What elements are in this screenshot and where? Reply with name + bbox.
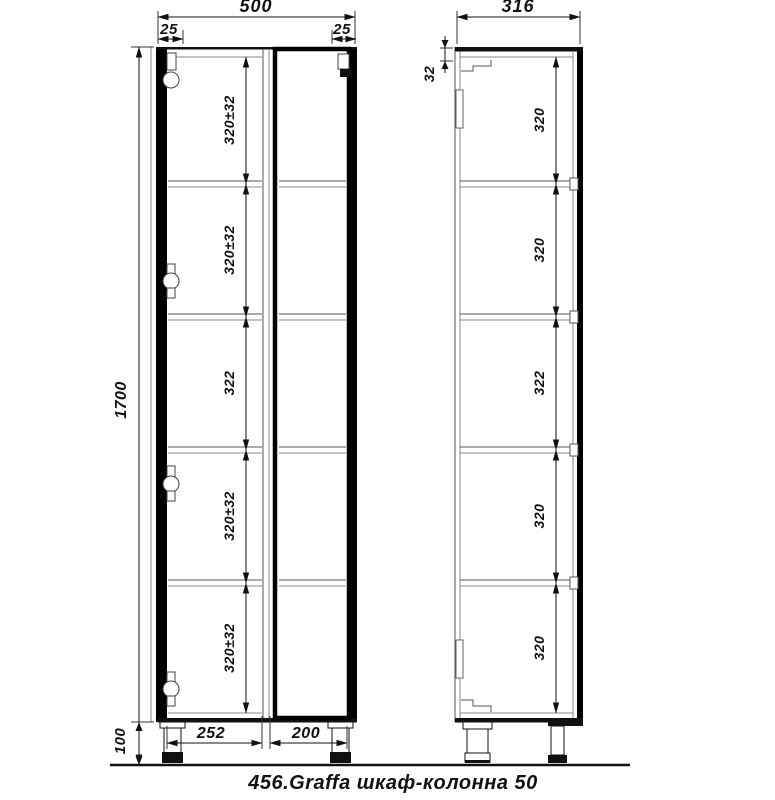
shelf-lines-side [460,178,578,589]
leg-foot [162,752,183,763]
top-panel-edge [455,47,583,52]
dim-label-shelf-4: 320±32 [221,491,237,541]
dim-label-25-right: 25 [332,21,351,38]
dim-label-shelf-1: 320±32 [221,95,237,145]
bottom-bracket-icon [461,700,491,712]
shelf-support-icon [570,178,578,190]
top-bracket-icon [461,60,491,71]
dim-side-shelf-chain: 320 320 322 320 320 [531,57,556,713]
back-panel [577,47,583,722]
leg-foot [548,755,567,763]
shelf-lines-left-section [168,181,262,586]
dim-label-32: 32 [421,66,437,83]
right-door-panel [275,49,349,718]
dim-total-depth: 316 [457,0,580,44]
hinge-plate-icon [456,90,463,128]
dim-label-side-shelf-4: 320 [531,504,547,529]
dim-total-width: 500 [158,0,355,44]
dim-right-offset: 25 [332,21,356,44]
dim-label-shelf-2: 320±32 [221,225,237,275]
dim-label-shelf-3: 322 [221,371,237,396]
side-view: 316 32 320 320 322 320 320 [421,0,583,763]
dim-leg-height: 100 [112,722,154,765]
dim-front-shelf-chain: 320±32 320±32 322 320±32 320±32 [221,57,246,713]
technical-drawing-page: 500 25 25 1700 100 [0,0,775,800]
dim-label-100: 100 [112,728,129,755]
dim-label-200: 200 [291,725,320,742]
hinge-plate-icon [456,640,463,678]
dim-label-side-shelf-1: 320 [531,108,547,133]
shelf-support-icon [570,444,578,456]
dim-label-25-left: 25 [159,21,178,38]
drawing-canvas: 500 25 25 1700 100 [0,0,775,800]
dim-label-side-shelf-2: 320 [531,238,547,263]
dim-label-shelf-5: 320±32 [221,623,237,673]
front-view: 500 25 25 1700 100 [112,0,357,765]
dim-top-thickness: 32 [421,36,453,82]
right-side-wall [351,47,357,722]
dim-label-252: 252 [196,725,225,742]
dim-label-side-shelf-5: 320 [531,636,547,661]
dim-label-side-shelf-3: 322 [531,371,547,396]
left-side-wall [156,47,167,722]
dim-label-316: 316 [501,0,534,16]
shelf-support-icon [570,577,578,589]
drawing-title: 456.Graffa шкаф-колонна 50 [247,772,538,794]
dim-label-500: 500 [239,0,272,16]
dim-total-height: 1700 [113,47,154,765]
shelf-support-icon [570,311,578,323]
side-legs [463,722,583,763]
leg-foot [330,752,351,763]
dim-label-1700: 1700 [113,381,130,419]
dim-left-offset: 25 [158,21,183,44]
